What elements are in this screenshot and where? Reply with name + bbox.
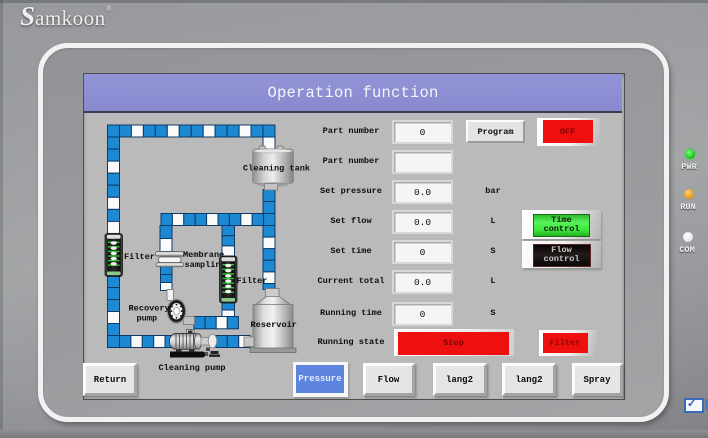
svg-text:Cleaning pump: Cleaning pump bbox=[159, 363, 226, 373]
svg-text:Recovery: Recovery bbox=[129, 303, 170, 313]
svg-text:Reservoir: Reservoir bbox=[251, 320, 297, 330]
svg-text:Filter: Filter bbox=[124, 252, 155, 262]
svg-text:pump: pump bbox=[137, 314, 158, 324]
svg-text:Membrane: Membrane bbox=[183, 250, 224, 260]
svg-text:Filter: Filter bbox=[237, 276, 268, 286]
svg-text:Cleaning tank: Cleaning tank bbox=[243, 164, 310, 174]
